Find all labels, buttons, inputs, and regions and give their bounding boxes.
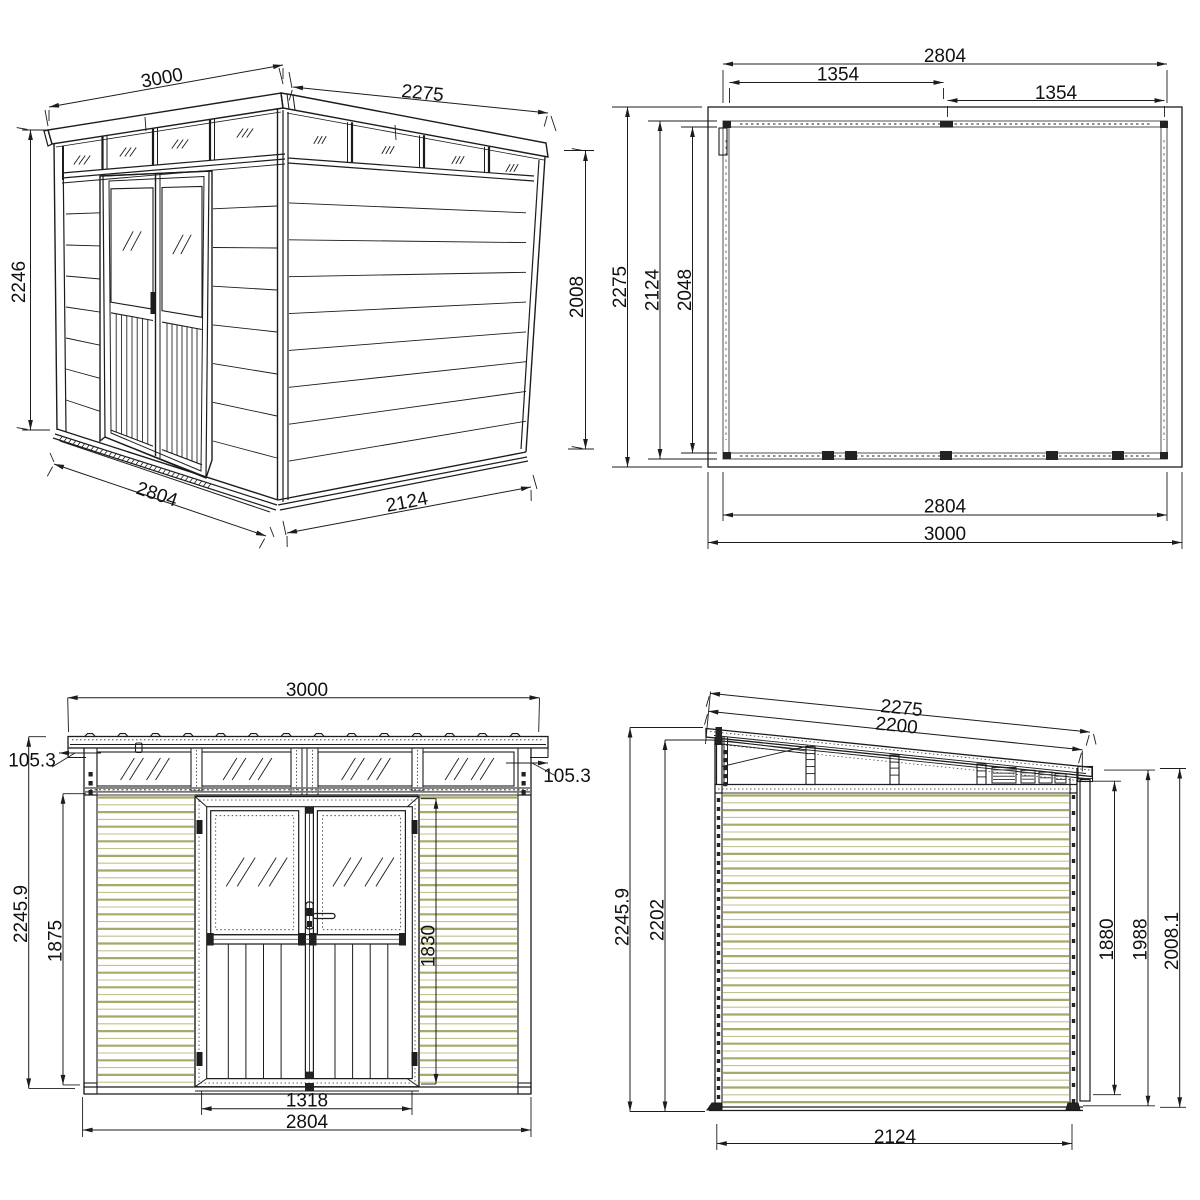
svg-text:1318: 1318	[286, 1091, 328, 1112]
svg-text:2202: 2202	[648, 899, 669, 941]
svg-text:2245.9: 2245.9	[613, 888, 634, 946]
svg-text:2804: 2804	[924, 497, 967, 518]
svg-text:2245.9: 2245.9	[11, 885, 32, 943]
svg-text:1988: 1988	[1131, 918, 1152, 960]
svg-text:2124: 2124	[643, 268, 664, 311]
svg-text:105.3: 105.3	[8, 751, 56, 772]
svg-text:1875: 1875	[46, 920, 67, 962]
svg-text:2200: 2200	[874, 713, 918, 738]
svg-text:2246: 2246	[9, 261, 30, 303]
svg-text:3000: 3000	[924, 524, 966, 545]
svg-text:3000: 3000	[286, 680, 328, 701]
svg-text:1354: 1354	[817, 65, 860, 86]
svg-text:2124: 2124	[874, 1127, 917, 1148]
svg-text:1830: 1830	[419, 925, 440, 967]
svg-text:105.3: 105.3	[543, 766, 591, 787]
svg-text:2275: 2275	[400, 81, 444, 106]
svg-text:1880: 1880	[1097, 918, 1118, 960]
svg-text:2008.1: 2008.1	[1162, 912, 1183, 970]
svg-text:2275: 2275	[610, 266, 631, 308]
svg-text:2048: 2048	[675, 269, 696, 311]
svg-text:2804: 2804	[286, 1112, 329, 1133]
svg-text:2008: 2008	[567, 276, 588, 318]
svg-text:1354: 1354	[1035, 83, 1078, 104]
svg-text:2804: 2804	[924, 46, 967, 67]
